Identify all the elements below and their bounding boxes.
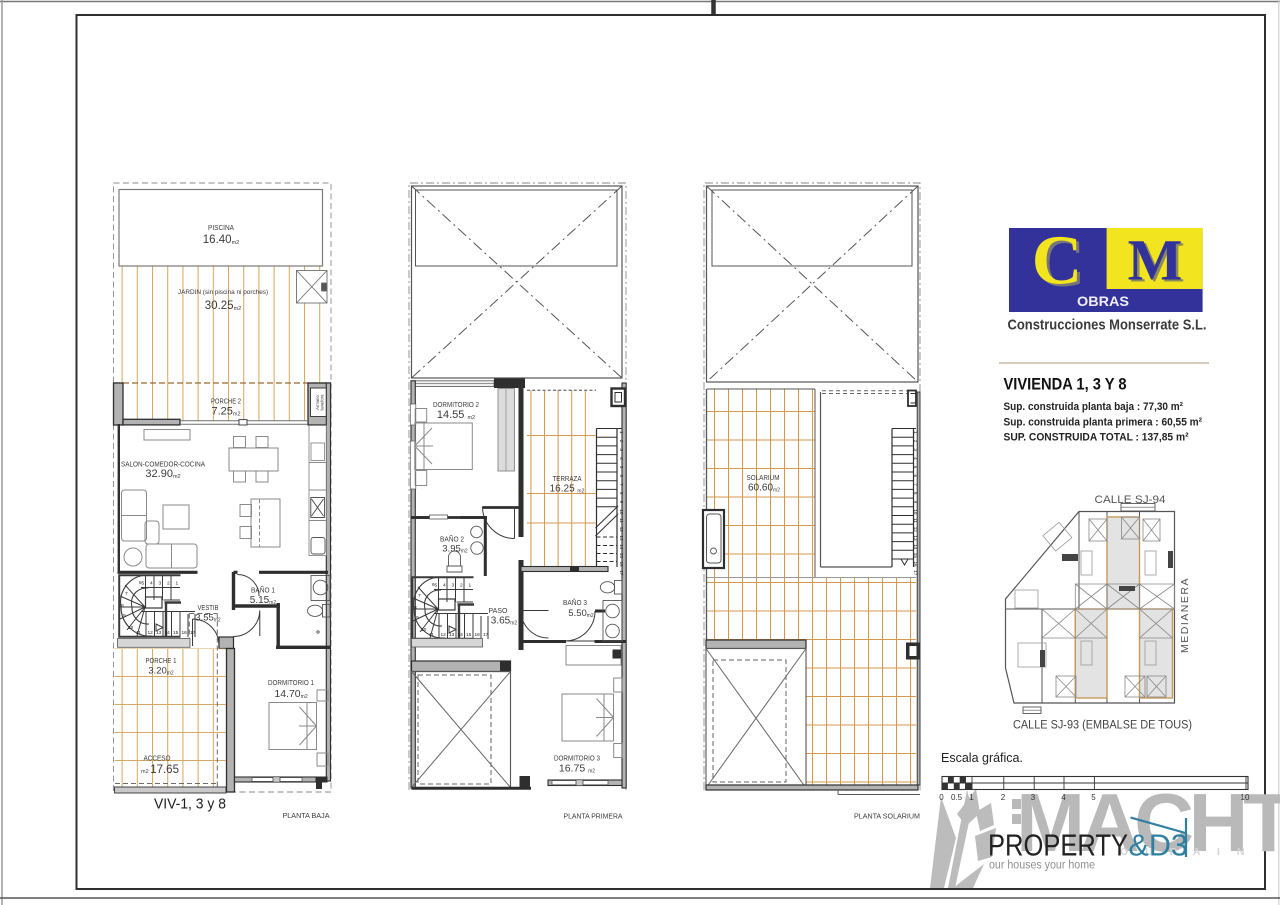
svg-text:2: 2 xyxy=(913,440,918,443)
svg-text:15: 15 xyxy=(913,553,918,559)
svg-text:our houses your home: our houses your home xyxy=(989,860,1095,872)
svg-text:C: C xyxy=(1032,223,1083,300)
svg-text:3: 3 xyxy=(1031,793,1036,802)
svg-text:17: 17 xyxy=(913,570,918,576)
svg-text:VESTIB: VESTIB xyxy=(198,605,219,612)
svg-text:5: 5 xyxy=(619,466,624,469)
svg-text:Sup. construida planta primera: Sup. construida planta primera : 60,55 m… xyxy=(1004,417,1203,429)
svg-text:PASO: PASO xyxy=(489,606,508,615)
svg-text:1: 1 xyxy=(619,431,624,434)
svg-text:BAÑO 3: BAÑO 3 xyxy=(563,598,587,607)
svg-text:PISCINA: PISCINA xyxy=(208,225,234,232)
svg-text:7: 7 xyxy=(619,483,624,486)
svg-text:PROPERTY: PROPERTY xyxy=(988,829,1128,863)
svg-text:15: 15 xyxy=(619,553,624,559)
svg-text:ACCESO: ACCESO xyxy=(144,754,171,763)
svg-text:8: 8 xyxy=(913,492,918,495)
svg-text:TERRAZA: TERRAZA xyxy=(553,474,582,483)
svg-text:13: 13 xyxy=(619,535,624,541)
svg-text:0: 0 xyxy=(939,793,944,802)
svg-text:PORCHE 2: PORCHE 2 xyxy=(211,397,241,406)
svg-text:4: 4 xyxy=(1061,793,1066,802)
svg-text:13: 13 xyxy=(913,535,918,541)
svg-text:14: 14 xyxy=(913,544,918,550)
svg-text:6: 6 xyxy=(619,475,624,478)
svg-text:PORCHE 1: PORCHE 1 xyxy=(146,656,177,665)
svg-text:BAÑO 2: BAÑO 2 xyxy=(440,535,464,544)
svg-text:PLANTA SOLARIUM: PLANTA SOLARIUM xyxy=(854,812,920,821)
svg-text:3: 3 xyxy=(913,448,918,451)
svg-text:JARDIN (sin piscina ni porches: JARDIN (sin piscina ni porches) xyxy=(178,289,268,296)
svg-text:6: 6 xyxy=(913,475,918,478)
svg-text:Construcciones Monserrate S.L.: Construcciones Monserrate S.L. xyxy=(1008,317,1207,334)
svg-text:VIV-1, 3 y 8: VIV-1, 3 y 8 xyxy=(154,797,226,813)
svg-text:12: 12 xyxy=(913,527,918,533)
svg-text:17: 17 xyxy=(619,570,624,576)
svg-text:Sup. construida planta baja :: Sup. construida planta baja : 77,30 m² xyxy=(1004,401,1184,413)
svg-text:MEDIANERA: MEDIANERA xyxy=(1179,577,1191,653)
svg-text:10: 10 xyxy=(619,509,624,515)
svg-text:16: 16 xyxy=(913,562,918,568)
svg-text:4: 4 xyxy=(913,457,918,460)
svg-text:&D3: &D3 xyxy=(1129,829,1188,863)
svg-text:4: 4 xyxy=(619,457,624,460)
svg-text:lavadora: lavadora xyxy=(320,394,325,411)
svg-text:0.5: 0.5 xyxy=(951,793,963,802)
svg-text:2: 2 xyxy=(1001,793,1006,802)
svg-text:CALLE SJ-93 (EMBALSE DE TOUS: CALLE SJ-93 (EMBALSE DE TOUS) xyxy=(1013,720,1192,732)
svg-text:7: 7 xyxy=(913,483,918,486)
svg-text:VIVIENDA 1, 3 Y 8: VIVIENDA 1, 3 Y 8 xyxy=(1004,376,1127,394)
svg-text:DORMITORIO 3: DORMITORIO 3 xyxy=(554,754,600,763)
svg-text:11: 11 xyxy=(619,518,624,523)
svg-text:BAÑO 1: BAÑO 1 xyxy=(251,586,275,595)
svg-text:SOLARIUM: SOLARIUM xyxy=(747,473,780,482)
svg-text:Escala gráfica.: Escala gráfica. xyxy=(941,751,1023,765)
svg-text:PLANTA BAJA: PLANTA BAJA xyxy=(283,811,330,820)
svg-text:9: 9 xyxy=(913,501,918,504)
svg-text:5: 5 xyxy=(1091,793,1096,802)
svg-text:OBRAS: OBRAS xyxy=(1077,293,1129,309)
svg-text:DORMITORIO 1: DORMITORIO 1 xyxy=(268,678,314,687)
svg-text:14: 14 xyxy=(619,544,624,550)
svg-text:M: M xyxy=(1128,228,1183,293)
svg-text:1: 1 xyxy=(913,431,918,434)
svg-text:1: 1 xyxy=(969,793,974,802)
svg-text:5: 5 xyxy=(913,466,918,469)
svg-text:9: 9 xyxy=(619,501,624,504)
svg-text:16: 16 xyxy=(619,562,624,568)
svg-text:11: 11 xyxy=(913,518,918,523)
svg-text:SUP. CONSTRUIDA TOTAL : 137,85: SUP. CONSTRUIDA TOTAL : 137,85 m² xyxy=(1004,432,1189,444)
svg-text:3: 3 xyxy=(619,448,624,451)
svg-text:DORMITORIO 2: DORMITORIO 2 xyxy=(433,400,479,409)
svg-text:PLANTA PRIMERA: PLANTA PRIMERA xyxy=(564,812,623,821)
svg-text:12: 12 xyxy=(619,527,624,533)
svg-text:10: 10 xyxy=(1241,793,1250,802)
svg-text:2: 2 xyxy=(619,440,624,443)
svg-text:10: 10 xyxy=(913,509,918,515)
svg-text:8: 8 xyxy=(619,492,624,495)
